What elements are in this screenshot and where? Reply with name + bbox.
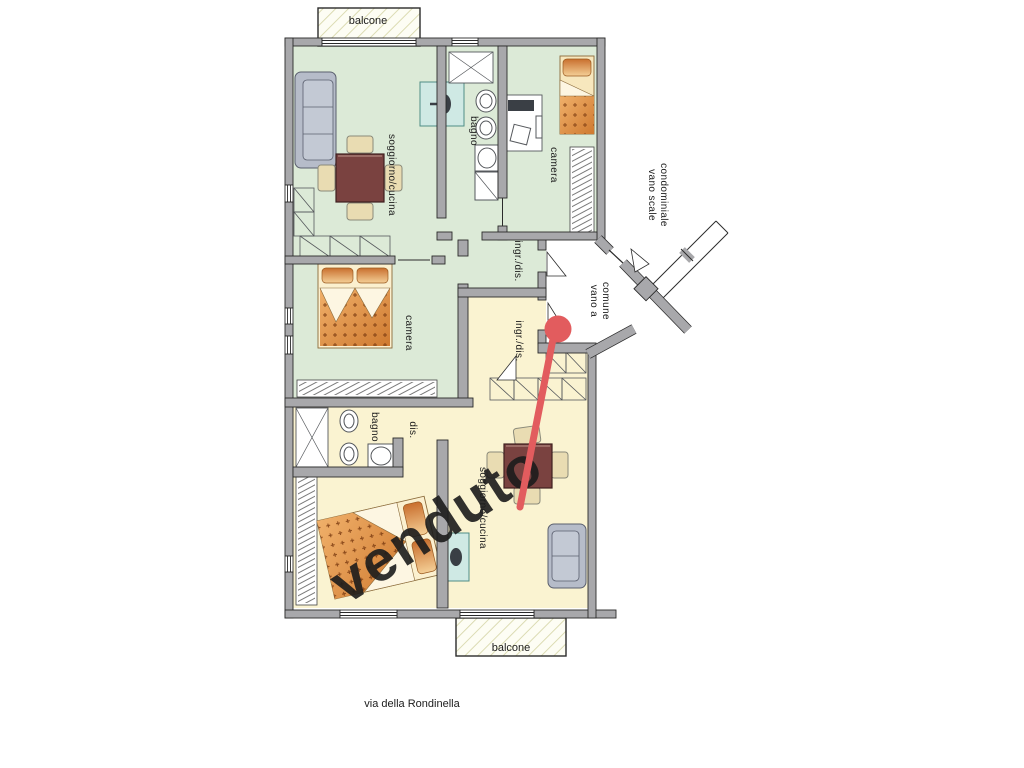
label-entry-yellow: ingr./dis. <box>513 320 524 361</box>
label-shared-hall-2: comune <box>600 282 611 320</box>
sofa-symbol-yellow <box>548 524 586 588</box>
label-bath-yellow: bagno <box>369 412 380 442</box>
radiator-green-bedroom2 <box>297 380 437 397</box>
sofa-symbol-green <box>295 72 336 168</box>
balcony-top-label: balcone <box>349 15 388 27</box>
balcony-bottom-label: balcone <box>492 642 531 654</box>
label-bedroom-right-green: camera <box>548 147 559 183</box>
street-label: via della Rondinella <box>364 698 460 710</box>
double-bed-green <box>318 264 392 348</box>
label-hallway-yellow: dis. <box>407 421 418 438</box>
shower-yellow <box>296 408 328 467</box>
label-bedroom-left-green: camera <box>403 315 414 351</box>
label-bath-green: bagno <box>468 116 479 146</box>
desk-computer-green <box>505 95 542 151</box>
single-bed-green <box>560 56 594 134</box>
staircase-lines <box>651 221 728 298</box>
radiator-green-bedroom <box>570 147 594 237</box>
floor-plan-page: balcone balcone <box>0 0 1024 768</box>
label-living-green: soggiorno/cucina <box>386 134 397 216</box>
shower-green <box>449 52 493 83</box>
label-shared-hall-1: vano a <box>588 285 599 317</box>
label-stairwell-2: condominiale <box>658 163 669 227</box>
radiator-yellow-bedroom <box>296 471 317 605</box>
label-entry-green: ingr./dis. <box>512 240 523 281</box>
label-stairwell-1: vano scale <box>646 169 657 221</box>
balcony-bottom: balcone <box>456 618 566 656</box>
floor-plan-canvas: balcone balcone <box>0 0 1024 768</box>
